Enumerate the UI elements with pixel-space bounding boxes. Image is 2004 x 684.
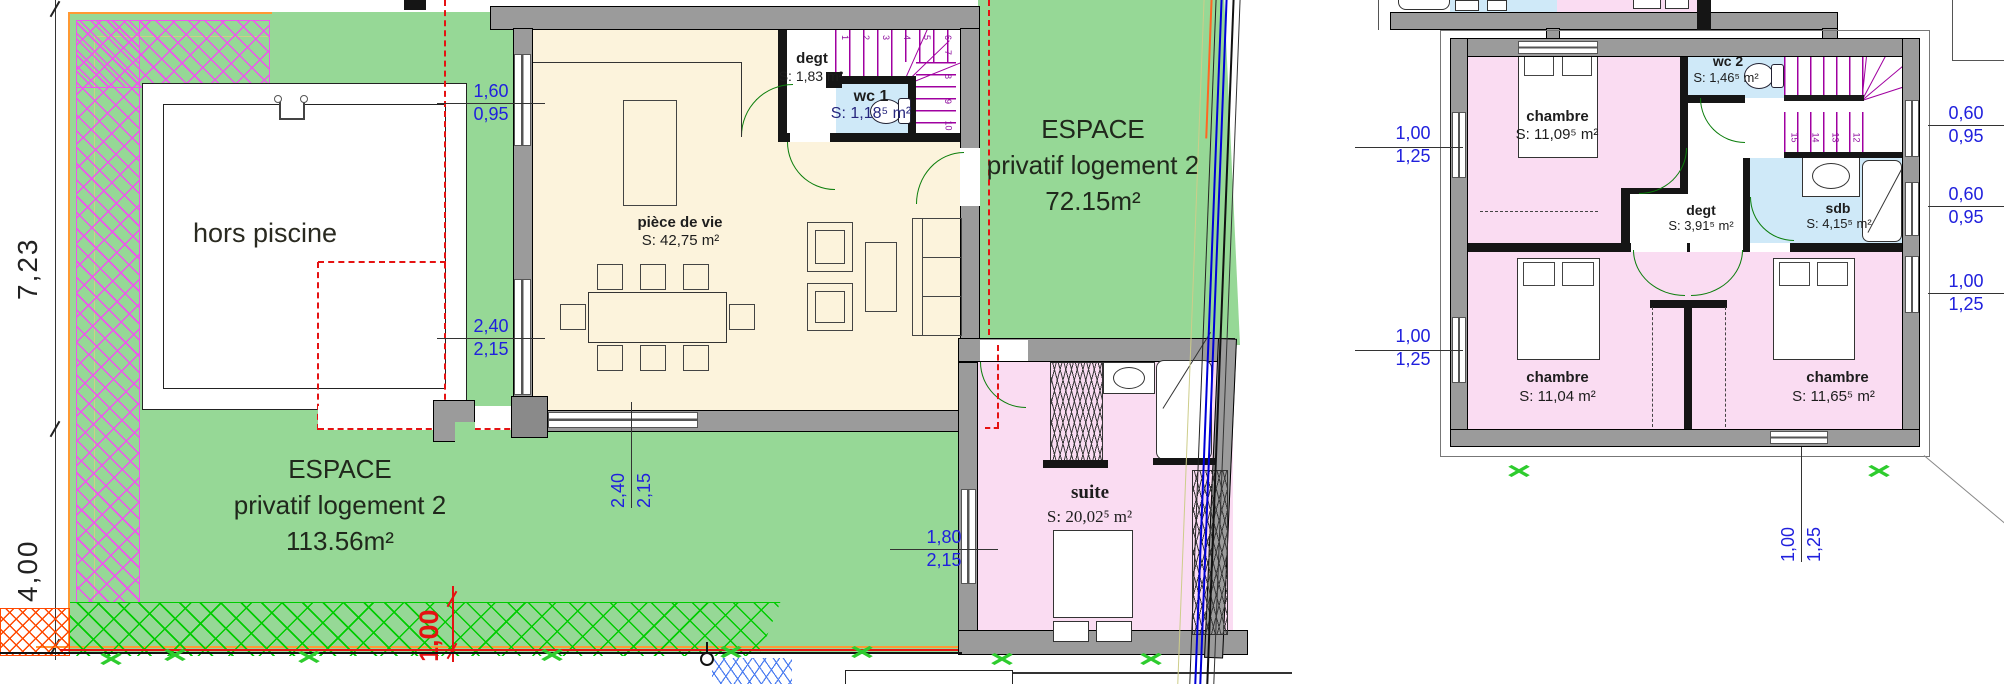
grass-tick-icon: × xyxy=(1866,460,1891,484)
room-name: degt xyxy=(782,50,842,67)
dim-value: 0,95 xyxy=(1948,208,1983,228)
garden-label-line: 113.56m² xyxy=(215,524,465,560)
room-name: chambre xyxy=(1510,108,1605,125)
window xyxy=(1905,256,1919,313)
site-height-dim-lower: 4,00 xyxy=(12,482,44,602)
dining-table xyxy=(588,292,727,343)
stair-landing-bar xyxy=(1784,95,1864,101)
room-name: chambre xyxy=(1510,369,1605,386)
hatched-strip-left xyxy=(76,20,140,603)
stair-number: 4 xyxy=(898,35,911,40)
dim-value: 0,60 xyxy=(1948,185,1983,205)
garden-sw-label: ESPACE privatif logement 2 113.56m² xyxy=(215,452,465,560)
chair xyxy=(640,345,666,371)
armchair-seat xyxy=(815,291,845,323)
dim-value: 1,25 xyxy=(1395,147,1430,167)
washbasin-bowl-icon xyxy=(1812,163,1850,189)
garden-label-line: privatif logement 2 xyxy=(215,488,465,524)
limit-line-red xyxy=(985,427,999,429)
stair-number: 2 xyxy=(857,35,870,40)
pillow xyxy=(1523,262,1555,286)
room-area: S: 1,18⁵ m² xyxy=(815,105,927,123)
stair-number: 6 xyxy=(939,35,952,40)
grass-tick-icon: × xyxy=(1138,648,1163,672)
cross-wall xyxy=(1684,300,1692,430)
boundary-line-orange xyxy=(68,12,70,648)
bed xyxy=(1053,530,1133,618)
stair-number: 3 xyxy=(877,35,890,40)
dashed-partition xyxy=(1652,307,1653,427)
stair-number: 5 xyxy=(918,35,931,40)
pool-label: hors piscine xyxy=(165,218,365,249)
dim-value: 1,80 xyxy=(926,528,961,548)
room-name: wc 2 xyxy=(1697,53,1759,69)
armchair-seat xyxy=(815,230,845,264)
dimension: 1,60 0,95 xyxy=(437,82,545,125)
room-area: S: 11,04 m² xyxy=(1500,388,1615,405)
room-area: S: 42,75 m² xyxy=(608,232,753,249)
grass-tick-icon: × xyxy=(849,641,874,665)
chair xyxy=(683,264,709,290)
limit-line-red xyxy=(318,261,446,263)
red-line xyxy=(60,649,958,651)
grass-tick-icon: × xyxy=(98,648,123,672)
stair-divider xyxy=(1784,152,1902,158)
dim-value: 2,15 xyxy=(473,340,508,360)
sofa-back-line xyxy=(922,219,923,335)
dim-value: 1,00 xyxy=(1948,272,1983,292)
valve-symbol xyxy=(700,652,714,666)
dimension: 1,00 1,25 xyxy=(1382,327,1444,370)
window xyxy=(1452,112,1466,178)
dim-value: 1,25 xyxy=(1395,350,1430,370)
boundary-line-black xyxy=(1206,0,1235,684)
door-opening xyxy=(980,340,1028,361)
dimension: 1,00 1,25 xyxy=(1928,272,2004,315)
washbasin xyxy=(1455,0,1479,11)
dim-value: 2,15 xyxy=(634,402,655,508)
site-dim-line xyxy=(55,0,56,660)
pillow xyxy=(1562,262,1594,286)
garden-label-line: ESPACE xyxy=(215,452,465,488)
roof-outline xyxy=(1952,60,2004,61)
roof-outline xyxy=(1952,0,1953,60)
garden-east-label: ESPACE privatif logement 2 72.15m² xyxy=(973,112,1213,220)
room-name: pièce de vie xyxy=(610,214,750,231)
pillow xyxy=(1779,262,1810,286)
garden-label-line: 72.15m² xyxy=(973,184,1213,220)
sofa-cushion-line xyxy=(922,257,961,258)
grass-tick-icon: × xyxy=(296,646,321,670)
interior-wall xyxy=(1043,460,1108,468)
window xyxy=(1905,182,1919,236)
exterior-wall-north xyxy=(490,6,980,30)
dashed-partition xyxy=(1725,307,1726,427)
grass-tick-icon: × xyxy=(1506,460,1531,484)
room-area: S: 4,15⁵ m² xyxy=(1794,216,1884,231)
stair-numbers-top: 123456 xyxy=(840,31,948,44)
stair-number: 9 xyxy=(943,99,952,104)
roof-outline xyxy=(1378,0,1379,30)
washbasin-bowl-icon xyxy=(1113,367,1145,389)
site-height-dim-upper: 7,23 xyxy=(12,170,44,300)
room-area: S: 3,91⁵ m² xyxy=(1657,218,1745,233)
nightstand xyxy=(1053,621,1089,642)
dimension: 2,40 2,15 xyxy=(437,317,545,360)
stair-numbers-side: 78910 xyxy=(941,48,955,130)
bathtub xyxy=(1398,0,1450,10)
exterior-wall-south xyxy=(1450,429,1920,447)
floor-plan-drawing: 7,23 4,00 hors piscine ESPACE privatif l… xyxy=(0,0,2004,684)
room-area: S: 11,65⁵ m² xyxy=(1776,388,1891,405)
boundary-line-orange xyxy=(68,12,272,14)
dim-value: 0,95 xyxy=(1948,127,1983,147)
chair xyxy=(597,345,623,371)
dim-value: 1,25 xyxy=(1948,295,1983,315)
dimension: 0,60 0,95 xyxy=(1928,104,2004,147)
dim-line xyxy=(1801,447,1802,560)
dim-value: 2,15 xyxy=(926,551,961,571)
dim-value: 1,00 xyxy=(1395,327,1430,347)
sofa-cushion-line xyxy=(922,296,961,297)
kitchen-counter-line xyxy=(741,62,742,137)
pool-ladder xyxy=(279,101,305,120)
garden-wall-notch xyxy=(455,422,475,442)
chair xyxy=(640,264,666,290)
upper-band-wall-stub xyxy=(1697,0,1711,30)
room-name: degt xyxy=(1672,202,1730,218)
exterior-wall-west xyxy=(1450,38,1468,447)
door-opening xyxy=(1750,243,1790,252)
dim-value: 1,00 xyxy=(1395,124,1430,144)
dim-value: 1,25 xyxy=(1804,458,1825,562)
room-area: S: 11,09⁵ m² xyxy=(1496,126,1618,143)
room-name: wc 1 xyxy=(845,88,897,106)
toilet-tank-icon xyxy=(1771,64,1784,88)
grass-tick-icon: × xyxy=(539,644,564,668)
dashed-partition xyxy=(1480,211,1598,212)
stair-number: 7 xyxy=(943,50,952,55)
chair xyxy=(683,345,709,371)
dim-value: 1,60 xyxy=(473,82,508,102)
stair-number: 12 xyxy=(1847,132,1860,142)
room-name: chambre xyxy=(1790,369,1885,386)
ground-line xyxy=(0,652,962,654)
stair-number: 1 xyxy=(836,35,849,40)
interior-wall xyxy=(1468,243,1910,252)
terrace-outline xyxy=(845,670,1013,684)
garden-label-line: privatif logement 2 xyxy=(973,148,1213,184)
limit-line-red xyxy=(997,345,999,428)
chair xyxy=(729,304,755,330)
room-name: suite xyxy=(1040,482,1140,504)
bed xyxy=(1633,0,1661,9)
stair-number: 10 xyxy=(943,120,952,130)
bed xyxy=(1665,0,1689,9)
window xyxy=(1905,100,1919,157)
stair-number: 13 xyxy=(1827,132,1840,142)
grass-tick-icon: × xyxy=(718,641,743,665)
limit-line-red xyxy=(317,262,319,430)
pool-ladder-post xyxy=(300,95,308,103)
stair-number: 8 xyxy=(943,74,952,79)
grass-tick-icon: × xyxy=(989,648,1014,672)
kitchen-counter-line xyxy=(533,62,742,63)
walkway xyxy=(318,406,520,430)
chair xyxy=(597,264,623,290)
room-name: sdb xyxy=(1810,200,1866,216)
sofa xyxy=(912,218,962,336)
stair-number: 15 xyxy=(1786,132,1799,142)
wardrobe xyxy=(1050,362,1103,462)
dimension: 2,40 2,15 xyxy=(608,402,655,508)
dim-value: 1,00 xyxy=(1778,458,1799,562)
washbasin xyxy=(1487,0,1507,11)
room-area: S: 1,46⁵ m² xyxy=(1680,70,1772,85)
pillow xyxy=(1817,262,1848,286)
grass-tick-icon: × xyxy=(162,644,187,668)
dimension: 0,60 0,95 xyxy=(1928,185,2004,228)
room-area: S: 1,83 m² xyxy=(768,68,854,84)
roof-outline xyxy=(1924,455,2004,528)
dim-value: 2,40 xyxy=(473,317,508,337)
limit-line-red xyxy=(444,0,446,430)
dimension: 1,00 1,25 xyxy=(1382,124,1444,167)
room-area: S: 20,02⁵ m² xyxy=(1027,507,1152,527)
dim-value: 0,95 xyxy=(473,105,508,125)
dim-value: 2,40 xyxy=(608,402,629,508)
chair xyxy=(560,304,586,330)
stair-number: 14 xyxy=(1806,132,1819,142)
nightstand xyxy=(1096,621,1132,642)
garden-label-line: ESPACE xyxy=(973,112,1213,148)
window xyxy=(1518,41,1598,54)
corner-pillar xyxy=(511,396,548,438)
window xyxy=(1770,431,1828,444)
upper-band-wall xyxy=(1390,12,1838,30)
stair-numbers-bottom: 15141312 xyxy=(1787,131,1859,144)
kitchen-island xyxy=(623,100,677,206)
dim-value: 0,60 xyxy=(1948,104,1983,124)
coffee-table xyxy=(865,242,897,312)
pool-ladder-post xyxy=(274,95,282,103)
dimension: 1,80 2,15 xyxy=(890,528,998,571)
fence-wall-stub xyxy=(404,0,426,10)
limit-line-red xyxy=(318,428,520,430)
door-opening xyxy=(790,133,830,142)
valve-symbol-stem xyxy=(706,642,708,652)
